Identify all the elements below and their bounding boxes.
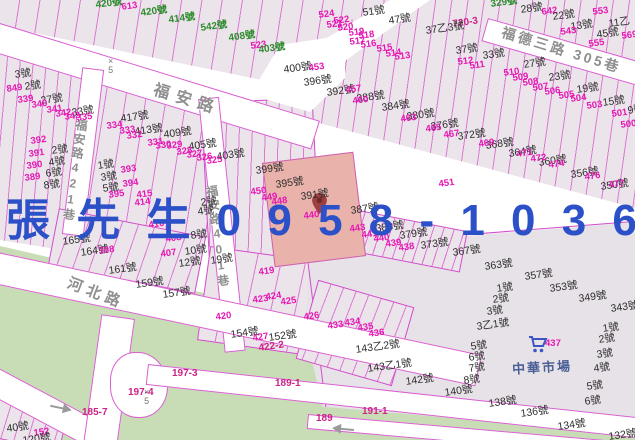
parcel-label: 467 xyxy=(443,129,460,141)
parcel-label: 417號 xyxy=(120,110,149,124)
parcel-label: 325 xyxy=(206,155,223,167)
parcel-label: 476 xyxy=(584,171,601,183)
parcel-label: 159號 xyxy=(135,276,164,290)
parcel-label: 335 xyxy=(76,112,93,124)
parcel-label: 47號 xyxy=(388,13,411,26)
parcel-label: 419 xyxy=(258,266,275,278)
parcel-label: 425 xyxy=(280,296,297,308)
parcel-label: 3號 xyxy=(486,305,504,318)
parcel-label: 613 xyxy=(121,1,138,13)
parcel-label: 157號 xyxy=(162,286,191,300)
survey-mark-x5: ×5 xyxy=(144,388,149,406)
parcel-label: 2號 xyxy=(24,80,42,93)
parcel-label: 472 xyxy=(530,153,547,165)
parcel-label: 501 xyxy=(611,108,628,120)
parcel-label: 142號 xyxy=(405,373,434,387)
parcel-label: 197-3 xyxy=(172,369,198,379)
parcel-label: 9號 xyxy=(627,104,635,117)
parcel-label: 353號 xyxy=(549,280,578,294)
parcel-label: 420號 xyxy=(140,5,168,19)
parcel-label: 363號 xyxy=(484,258,513,272)
parcel-label: 569 xyxy=(621,30,635,42)
parcel-label: 392 xyxy=(30,135,47,147)
parcel-label: 161號 xyxy=(108,262,137,276)
parcel-label: 23號 xyxy=(548,70,571,83)
parcel-label: 357號 xyxy=(524,268,553,282)
parcel-label: 143乙2號 xyxy=(355,339,400,356)
parcel-label: 132號 xyxy=(608,428,635,440)
parcel-label: 3乙1號 xyxy=(476,317,510,332)
parcel-label: 420號 xyxy=(95,0,123,11)
parcel-label: 407 xyxy=(160,248,177,260)
parcel-label: 393 xyxy=(120,164,137,176)
parcel-label: 136號 xyxy=(520,405,549,419)
cadastral-map[interactable]: 福安路 福德三路 305巷 河北路 福安路421巷 福安路401巷 中華市場 4… xyxy=(0,0,635,440)
parcel-label: 542號 xyxy=(200,20,228,34)
parcel-label: 189-1 xyxy=(275,379,301,389)
market-label: 中華市場 xyxy=(512,355,573,377)
parcel-label: 543 xyxy=(560,26,577,38)
parcel-label: 332 xyxy=(126,130,143,142)
parcel-label: 191-1 xyxy=(362,407,388,417)
parcel-label: 474 xyxy=(548,159,565,171)
parcel-label: 436 xyxy=(368,328,385,340)
parcel-label: 516 xyxy=(360,39,377,51)
parcel-label: 143乙1號 xyxy=(367,358,412,375)
parcel-label: 138號 xyxy=(488,395,517,409)
parcel-label: 3號 xyxy=(14,68,32,81)
parcel-label: 2號 xyxy=(598,333,616,346)
parcel-label: 399號 xyxy=(255,162,284,176)
parcel-label: 555 xyxy=(588,38,605,50)
parcel-label: 349號 xyxy=(578,290,607,304)
parcel-label: 329號 xyxy=(490,0,518,10)
parcel-label: 414號 xyxy=(168,12,196,26)
parcel-label: 120號 xyxy=(22,432,51,440)
parcel-label: 426 xyxy=(303,311,320,323)
parcel-label: 511 xyxy=(469,60,486,72)
parcel-label: 6號 xyxy=(584,395,602,408)
parcel-label: 420 xyxy=(215,311,232,323)
parcel-label: 19號 xyxy=(210,253,233,266)
parcel-label: 390 xyxy=(26,160,43,172)
parcel-label: 465 xyxy=(425,123,442,135)
parcel-label: 460 xyxy=(352,95,369,107)
parcel-label: 469 xyxy=(478,138,495,150)
parcel-label: 391 xyxy=(28,148,45,160)
parcel-label: 453 xyxy=(308,62,325,74)
parcel-label: 3號 xyxy=(596,348,614,361)
parcel-label: 51號 xyxy=(362,5,385,18)
parcel-label: 37號 xyxy=(455,43,478,56)
parcel-label: 433 xyxy=(327,320,344,332)
parcel-label: 422-2 xyxy=(258,340,285,353)
parcel-label: 5號 xyxy=(586,380,604,393)
parcel-label: 12號 xyxy=(178,256,201,269)
parcel-label: 28號 xyxy=(520,2,543,15)
parcel-label: 513 xyxy=(394,51,411,63)
parcel-label: 27號 xyxy=(523,57,546,70)
parcel-label: 389 xyxy=(24,172,41,184)
parcel-label: 504 xyxy=(570,93,587,105)
parcel-label: 500 xyxy=(620,119,635,131)
parcel-label: 40號 xyxy=(6,421,29,434)
parcel-label: 185-7 xyxy=(82,408,108,418)
survey-mark-x5: ×5 xyxy=(108,57,113,75)
parcel-label: 849 xyxy=(6,83,23,95)
parcel-label: 37乙3號 xyxy=(425,21,465,37)
parcel-label: 197-4 xyxy=(128,388,154,398)
parcel-label: 343號 xyxy=(610,300,635,314)
parcel-label: 134號 xyxy=(557,418,586,432)
parcel-label: 553 xyxy=(592,6,609,18)
parcel-label: 189 xyxy=(316,414,333,424)
parcel-label: 463 xyxy=(400,113,417,125)
parcel-label: 140號 xyxy=(444,384,473,398)
parcel-label: 4號 xyxy=(593,362,611,375)
parcel-label: 403號 xyxy=(258,42,286,56)
parcel-label: 33號 xyxy=(482,48,505,61)
parcel-label: 503 xyxy=(586,100,603,112)
shopping-cart-icon xyxy=(528,336,548,354)
advert-overlay-text: 張 先 生 0 9 5 8 - 1 0 3 6 8 0 xyxy=(0,184,635,248)
